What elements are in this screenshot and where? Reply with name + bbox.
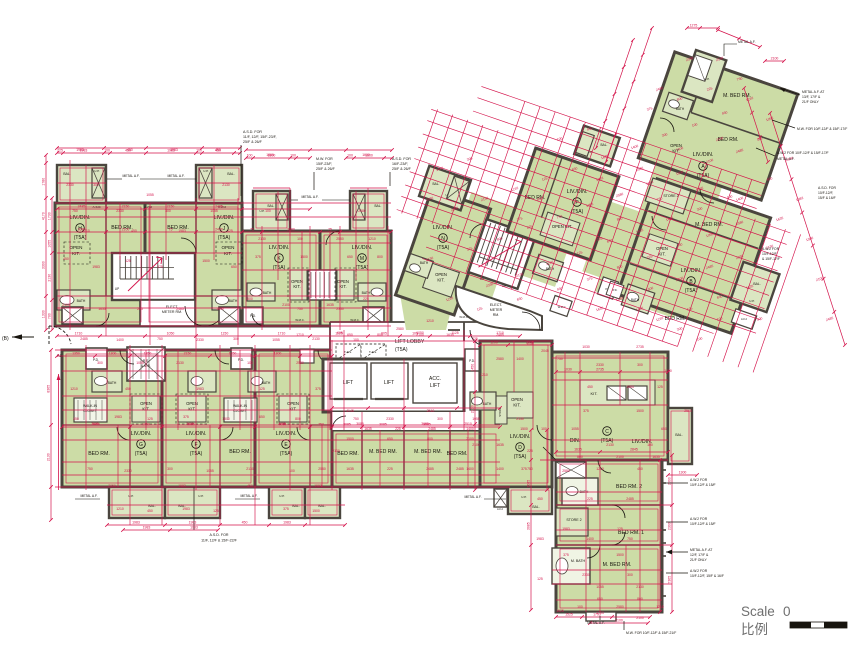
svg-text:METAL A.F.: METAL A.F.	[587, 621, 605, 625]
svg-text:125: 125	[125, 259, 131, 263]
svg-text:2580: 2580	[296, 361, 304, 365]
svg-text:BAL.: BAL.	[601, 143, 608, 147]
svg-text:1780: 1780	[41, 178, 45, 186]
svg-text:(T5A): (T5A)	[437, 245, 450, 251]
svg-text:LIV./DIN.: LIV./DIN.	[269, 245, 290, 251]
svg-text:1300: 1300	[679, 470, 687, 474]
svg-text:125: 125	[617, 527, 623, 531]
svg-text:2735: 2735	[636, 345, 644, 349]
svg-text:375: 375	[255, 255, 261, 259]
svg-text:BAL.: BAL.	[292, 504, 299, 508]
svg-text:300: 300	[637, 363, 643, 367]
svg-text:2330: 2330	[336, 307, 344, 311]
svg-text:75: 75	[169, 227, 173, 231]
svg-text:375: 375	[183, 415, 189, 419]
svg-text:(T5A): (T5A)	[571, 209, 584, 215]
svg-text:(T5A): (T5A)	[280, 451, 293, 457]
svg-text:650: 650	[661, 427, 667, 431]
svg-text:1210: 1210	[656, 605, 664, 609]
svg-text:M. BED RM.: M. BED RM.	[369, 449, 397, 455]
svg-text:1793: 1793	[596, 611, 604, 615]
svg-text:100: 100	[347, 153, 353, 157]
svg-text:2490: 2490	[215, 227, 223, 231]
svg-text:BAL.: BAL.	[148, 504, 155, 508]
svg-text:OPEN: OPEN	[656, 246, 668, 251]
svg-text:A.S.D. FOR: A.S.D. FOR	[243, 130, 262, 134]
svg-text:BED RM. 2: BED RM. 2	[616, 484, 642, 490]
svg-text:25/F & 26/F: 25/F & 26/F	[392, 167, 412, 171]
svg-text:OPEN: OPEN	[511, 397, 523, 402]
svg-text:1300: 1300	[274, 351, 282, 355]
svg-text:1400: 1400	[116, 338, 124, 342]
svg-text:2735: 2735	[596, 367, 604, 371]
svg-text:U.P.: U.P.	[203, 169, 209, 173]
svg-text:450: 450	[537, 497, 543, 501]
svg-text:750: 750	[157, 337, 163, 341]
svg-text:1983: 1983	[132, 520, 140, 524]
svg-text:450: 450	[242, 520, 248, 524]
svg-text:2560: 2560	[684, 409, 692, 413]
svg-text:2150: 2150	[122, 204, 130, 208]
svg-text:1100: 1100	[526, 342, 533, 346]
svg-text:1030: 1030	[582, 345, 590, 349]
svg-text:T.A.S.: T.A.S.	[344, 350, 352, 354]
svg-text:BAL.: BAL.	[318, 504, 325, 508]
svg-text:BED RM.: BED RM.	[665, 316, 686, 322]
svg-text:2100: 2100	[616, 455, 624, 459]
svg-text:(T5A): (T5A)	[135, 451, 148, 457]
svg-text:1275: 1275	[690, 23, 698, 27]
svg-text:2580: 2580	[496, 357, 504, 361]
svg-text:3085: 3085	[526, 522, 530, 530]
svg-text:BED RM.: BED RM.	[88, 451, 110, 457]
svg-text:300: 300	[93, 183, 99, 187]
svg-text:450: 450	[125, 387, 131, 391]
svg-text:KIT.: KIT.	[658, 252, 665, 257]
svg-text:KIT.: KIT.	[437, 278, 444, 283]
svg-text:METAL A.F.: METAL A.F.	[777, 157, 795, 161]
svg-text:2485: 2485	[176, 307, 184, 311]
svg-text:3085: 3085	[526, 480, 530, 488]
svg-text:BAL.: BAL.	[532, 505, 539, 509]
svg-text:CLOSET: CLOSET	[83, 409, 97, 413]
svg-text:1600: 1600	[362, 153, 370, 157]
svg-text:BAL.: BAL.	[268, 204, 275, 208]
svg-text:BAL.: BAL.	[63, 172, 70, 176]
svg-text:1300: 1300	[664, 369, 672, 373]
svg-text:METAL A.F. AT: METAL A.F. AT	[690, 548, 712, 552]
svg-text:25/F & 26/F: 25/F & 26/F	[243, 140, 263, 144]
svg-text:2580: 2580	[562, 469, 570, 473]
svg-text:800: 800	[377, 333, 383, 337]
svg-text:2130: 2130	[176, 361, 184, 365]
svg-text:800: 800	[637, 597, 643, 601]
svg-text:650: 650	[387, 437, 393, 441]
svg-text:1055: 1055	[571, 427, 579, 431]
svg-text:8365: 8365	[46, 385, 50, 393]
svg-text:METAL A.F. AT: METAL A.F. AT	[802, 90, 824, 94]
svg-text:METAL A.F.: METAL A.F.	[738, 40, 756, 44]
svg-text:LIV./DIN.: LIV./DIN.	[131, 431, 152, 437]
svg-text:650: 650	[597, 597, 603, 601]
svg-text:3300: 3300	[41, 261, 45, 269]
svg-text:1350: 1350	[144, 351, 152, 355]
svg-text:U.P.: U.P.	[749, 299, 755, 303]
svg-text:375: 375	[563, 553, 569, 557]
svg-text:450: 450	[215, 148, 221, 152]
svg-text:2100: 2100	[332, 449, 340, 453]
svg-text:2485: 2485	[80, 337, 88, 341]
svg-text:U.P.: U.P.	[259, 209, 264, 213]
svg-text:375: 375	[157, 265, 163, 269]
svg-text:2150: 2150	[167, 204, 175, 208]
svg-text:450: 450	[127, 148, 133, 152]
svg-text:A.W.2 FOR: A.W.2 FOR	[690, 569, 708, 573]
svg-text:1710: 1710	[496, 331, 504, 335]
svg-text:1983: 1983	[143, 525, 151, 529]
svg-text:3085: 3085	[278, 422, 286, 426]
svg-text:D: D	[518, 445, 522, 451]
svg-text:METAL A.F.: METAL A.F.	[301, 195, 318, 199]
svg-text:225: 225	[57, 148, 63, 152]
svg-text:800: 800	[427, 437, 433, 441]
svg-text:2330: 2330	[196, 338, 204, 342]
svg-text:11/F, 12/F & 15/F-22/F: 11/F, 12/F & 15/F-22/F	[201, 539, 237, 543]
svg-text:KIT.: KIT.	[289, 407, 296, 412]
svg-text:2100: 2100	[771, 56, 779, 60]
svg-text:2580: 2580	[336, 237, 344, 241]
svg-text:C: C	[605, 429, 609, 435]
svg-text:1450: 1450	[470, 364, 474, 372]
svg-text:1635: 1635	[364, 427, 372, 431]
svg-text:1710: 1710	[278, 331, 286, 335]
svg-text:2130: 2130	[246, 467, 254, 471]
svg-text:375: 375	[283, 507, 289, 511]
svg-text:1210: 1210	[480, 373, 488, 377]
svg-text:BAL.: BAL.	[375, 204, 382, 208]
svg-text:2130: 2130	[516, 417, 524, 421]
svg-text:1400: 1400	[516, 357, 524, 361]
svg-text:75: 75	[328, 227, 332, 231]
svg-text:225: 225	[387, 467, 393, 471]
svg-text:750: 750	[87, 467, 93, 471]
svg-text:2300: 2300	[667, 522, 671, 530]
svg-text:M.W. FOR 10/F-12/F & 15/F-17/F: M.W. FOR 10/F-12/F & 15/F-17/F	[797, 127, 847, 131]
svg-text:BATH: BATH	[262, 381, 271, 385]
svg-text:W.M.C.: W.M.C.	[295, 318, 304, 322]
svg-text:OPEN: OPEN	[435, 272, 447, 277]
svg-text:A.S.D. FOR: A.S.D. FOR	[210, 533, 229, 537]
svg-text:1800: 1800	[266, 153, 274, 157]
svg-text:2130: 2130	[312, 337, 320, 341]
svg-text:1055: 1055	[206, 469, 214, 473]
svg-text:1983: 1983	[626, 385, 634, 389]
svg-text:2580: 2580	[396, 327, 404, 331]
svg-text:2580: 2580	[318, 467, 326, 471]
svg-text:1210: 1210	[116, 507, 124, 511]
svg-text:U.P.: U.P.	[198, 494, 204, 498]
svg-text:METAL A.F.: METAL A.F.	[167, 174, 184, 178]
svg-text:U.P.: U.P.	[521, 495, 527, 499]
svg-text:2150: 2150	[184, 351, 192, 355]
svg-text:BAL.: BAL.	[433, 182, 440, 186]
svg-text:2330: 2330	[596, 363, 604, 367]
svg-text:1983: 1983	[178, 229, 186, 233]
svg-text:375: 375	[315, 387, 321, 391]
svg-text:(B): (B)	[2, 336, 9, 342]
svg-text:BAL.: BAL.	[753, 282, 760, 286]
svg-text:A.W.2 FOR: A.W.2 FOR	[690, 517, 708, 521]
svg-text:3085: 3085	[186, 422, 194, 426]
svg-text:1400: 1400	[496, 467, 504, 471]
svg-text:1983: 1983	[182, 507, 190, 511]
svg-text:100: 100	[290, 153, 296, 157]
svg-text:1983: 1983	[189, 520, 197, 524]
svg-text:10/F-12/F,: 10/F-12/F,	[818, 191, 833, 195]
svg-text:2100: 2100	[62, 303, 70, 307]
svg-text:1330: 1330	[41, 310, 45, 318]
svg-text:1055: 1055	[47, 240, 51, 248]
svg-text:125: 125	[213, 509, 219, 513]
svg-text:LIV./DIN.: LIV./DIN.	[276, 431, 297, 437]
svg-text:3085: 3085	[356, 422, 364, 426]
svg-text:2485: 2485	[626, 497, 634, 501]
svg-text:(T5A): (T5A)	[218, 235, 231, 241]
svg-text:1635: 1635	[98, 307, 106, 311]
svg-text:U.P.: U.P.	[128, 494, 134, 498]
svg-text:10/F-12/F, 15/F & 16/F: 10/F-12/F, 15/F & 16/F	[690, 574, 724, 578]
svg-text:450: 450	[587, 385, 593, 389]
svg-text:METAL A.F.: METAL A.F.	[122, 174, 139, 178]
svg-text:1983: 1983	[196, 387, 204, 391]
svg-text:21/F ONLY: 21/F ONLY	[690, 558, 707, 562]
svg-text:1500: 1500	[312, 509, 320, 513]
svg-text:800: 800	[377, 255, 383, 259]
svg-text:LIFT: LIFT	[343, 380, 353, 386]
svg-text:125: 125	[657, 385, 663, 389]
svg-text:225: 225	[527, 449, 533, 453]
svg-text:1400: 1400	[586, 537, 594, 541]
svg-text:750: 750	[72, 209, 78, 213]
svg-text:P.D.: P.D.	[613, 288, 618, 292]
svg-text:A.W.2 FOR 10/F-12/F & 15/F-17/: A.W.2 FOR 10/F-12/F & 15/F-17/F	[777, 151, 829, 155]
svg-text:1500: 1500	[520, 427, 528, 431]
svg-text:1730: 1730	[47, 212, 51, 220]
svg-text:3085: 3085	[421, 422, 429, 426]
svg-text:BATH: BATH	[676, 107, 685, 111]
svg-text:3085: 3085	[91, 422, 99, 426]
svg-text:1210: 1210	[426, 319, 434, 323]
svg-text:U.P.: U.P.	[94, 169, 100, 173]
svg-text:1983: 1983	[114, 415, 122, 419]
svg-text:100: 100	[289, 469, 295, 473]
svg-text:100: 100	[265, 209, 271, 213]
svg-text:1150: 1150	[221, 331, 229, 335]
svg-text:1635: 1635	[346, 467, 354, 471]
svg-text:Scale: Scale	[741, 604, 775, 619]
svg-text:2580: 2580	[358, 209, 366, 213]
svg-text:BATH: BATH	[229, 299, 238, 303]
svg-text:BAL.: BAL.	[675, 433, 682, 437]
svg-text:300: 300	[97, 361, 103, 365]
svg-text:750: 750	[353, 417, 359, 421]
svg-text:LIV./DIN.: LIV./DIN.	[214, 215, 235, 221]
svg-text:1350: 1350	[72, 351, 80, 355]
svg-text:225: 225	[587, 497, 593, 501]
svg-text:100: 100	[196, 148, 202, 152]
svg-text:OPEN: OPEN	[69, 245, 82, 250]
svg-text:650: 650	[347, 333, 353, 337]
svg-text:1983: 1983	[170, 148, 178, 152]
svg-text:2100: 2100	[615, 618, 623, 622]
svg-text:LIV./DIN.: LIV./DIN.	[70, 215, 91, 221]
svg-text:700: 700	[47, 313, 51, 319]
svg-text:1500: 1500	[202, 259, 210, 263]
svg-text:BATH: BATH	[263, 291, 272, 295]
svg-text:& 15/F-17/F: & 15/F-17/F	[762, 257, 780, 261]
svg-text:10/F-12/F: 10/F-12/F	[762, 252, 777, 256]
svg-text:10/F-12/F & 15/F: 10/F-12/F & 15/F	[690, 522, 716, 526]
svg-text:100: 100	[247, 153, 253, 157]
svg-text:LIV./DIN.: LIV./DIN.	[567, 189, 588, 195]
svg-text:1350: 1350	[229, 351, 237, 355]
svg-text:BED RM.: BED RM.	[337, 451, 359, 457]
svg-text:A.F.2: A.F.2	[497, 507, 503, 511]
svg-text:1050: 1050	[416, 331, 424, 335]
svg-text:2130: 2130	[636, 585, 644, 589]
svg-text:4145: 4145	[346, 409, 354, 413]
svg-text:450: 450	[147, 509, 153, 513]
svg-text:BED RM.: BED RM.	[229, 449, 251, 455]
svg-text:300: 300	[627, 573, 633, 577]
svg-text:KIT.: KIT.	[591, 391, 598, 396]
svg-text:2130: 2130	[470, 405, 474, 413]
svg-text:450: 450	[73, 417, 79, 421]
svg-text:M.W. FOR: M.W. FOR	[316, 157, 333, 161]
svg-text:1055: 1055	[210, 209, 218, 213]
svg-text:450: 450	[637, 467, 643, 471]
svg-text:2485: 2485	[428, 427, 436, 431]
svg-text:1500: 1500	[346, 437, 354, 441]
svg-text:1983: 1983	[562, 527, 570, 531]
svg-text:1525: 1525	[565, 612, 573, 616]
svg-text:BATH: BATH	[362, 291, 371, 295]
svg-text:1983: 1983	[178, 484, 186, 488]
svg-text:1055: 1055	[472, 417, 480, 421]
svg-text:A.S.D. FOR: A.S.D. FOR	[818, 186, 836, 190]
svg-text:1210: 1210	[82, 229, 90, 233]
svg-text:STORE 2: STORE 2	[566, 518, 581, 522]
svg-text:A.W.2 FOR: A.W.2 FOR	[762, 247, 780, 251]
svg-text:2050: 2050	[108, 484, 116, 488]
svg-text:1210: 1210	[596, 467, 604, 471]
svg-text:2100: 2100	[282, 303, 290, 307]
svg-text:1055: 1055	[596, 585, 604, 589]
svg-text:DIN.: DIN.	[570, 438, 580, 444]
svg-text:0: 0	[783, 604, 791, 619]
svg-text:1983: 1983	[190, 525, 198, 529]
svg-text:KIT.: KIT.	[72, 251, 80, 256]
svg-text:2485: 2485	[215, 204, 223, 208]
svg-text:225: 225	[363, 297, 369, 301]
svg-text:BATH: BATH	[108, 381, 117, 385]
svg-text:BAL.: BAL.	[227, 172, 234, 176]
svg-text:10/F-12/F & 15/F: 10/F-12/F & 15/F	[690, 483, 716, 487]
svg-text:M.W. FOR 10/F-12/F & 15/F-21/F: M.W. FOR 10/F-12/F & 15/F-21/F	[626, 631, 676, 635]
svg-text:OPEN: OPEN	[287, 401, 299, 406]
svg-text:1055: 1055	[136, 361, 144, 365]
svg-text:800: 800	[247, 297, 253, 301]
svg-text:300: 300	[167, 467, 173, 471]
svg-text:16/F-23/F,: 16/F-23/F,	[392, 162, 408, 166]
svg-text:A.W.2 FOR: A.W.2 FOR	[690, 478, 708, 482]
svg-text:125: 125	[147, 417, 153, 421]
svg-text:7365: 7365	[667, 576, 671, 584]
svg-text:2300: 2300	[667, 477, 671, 485]
svg-text:1050: 1050	[167, 331, 175, 335]
svg-text:25/F & 26/F: 25/F & 26/F	[316, 167, 336, 171]
svg-text:100: 100	[577, 605, 583, 609]
svg-text:KIT.: KIT.	[224, 251, 232, 256]
svg-text:KIT.: KIT.	[339, 284, 346, 289]
svg-text:375: 375	[521, 467, 527, 471]
svg-text:2130: 2130	[46, 453, 50, 461]
svg-text:3085: 3085	[379, 422, 387, 426]
svg-text:U.P.: U.P.	[279, 494, 285, 498]
svg-text:75: 75	[250, 227, 254, 231]
svg-text:800: 800	[577, 455, 583, 459]
svg-text:2330: 2330	[582, 573, 590, 577]
svg-text:OPEN: OPEN	[221, 245, 234, 250]
svg-text:125: 125	[259, 387, 265, 391]
svg-text:1300: 1300	[109, 351, 117, 355]
svg-text:13/F, 17/F &: 13/F, 17/F &	[802, 95, 821, 99]
svg-text:UP: UP	[115, 287, 119, 291]
svg-text:A.S.D. FOR: A.S.D. FOR	[392, 157, 411, 161]
svg-text:LIFT LOBBY: LIFT LOBBY	[395, 339, 425, 345]
svg-text:RM.: RM.	[493, 313, 500, 317]
svg-text:2130: 2130	[258, 237, 266, 241]
svg-text:G: G	[139, 442, 143, 448]
svg-text:KIT.: KIT.	[293, 284, 300, 289]
svg-text:2485: 2485	[426, 467, 434, 471]
svg-text:LIFT: LIFT	[384, 380, 394, 386]
svg-text:KIT.: KIT.	[513, 403, 520, 408]
svg-text:750: 750	[318, 422, 324, 426]
svg-text:BATH: BATH	[631, 298, 640, 302]
svg-text:1400: 1400	[216, 307, 224, 311]
svg-text:1983: 1983	[314, 484, 322, 488]
svg-text:750: 750	[627, 537, 633, 541]
svg-text:W.M.C.: W.M.C.	[459, 315, 468, 319]
svg-text:100: 100	[353, 338, 359, 342]
svg-text:WALK-IN: WALK-IN	[83, 404, 98, 408]
svg-text:800: 800	[295, 417, 301, 421]
svg-text:300: 300	[165, 209, 171, 213]
svg-text:KIT.: KIT.	[188, 407, 195, 412]
svg-text:1983: 1983	[76, 148, 84, 152]
svg-text:T.A.S.: T.A.S.	[369, 350, 377, 354]
svg-text:(T5A): (T5A)	[514, 454, 527, 460]
svg-text:1500: 1500	[300, 255, 308, 259]
svg-text:1983: 1983	[92, 265, 100, 269]
svg-text:2845: 2845	[630, 447, 638, 451]
svg-text:1125: 1125	[451, 331, 458, 335]
svg-text:225: 225	[137, 307, 143, 311]
svg-text:M. BED RM.: M. BED RM.	[603, 562, 632, 568]
svg-text:2100: 2100	[466, 437, 474, 441]
svg-text:1500: 1500	[222, 417, 230, 421]
